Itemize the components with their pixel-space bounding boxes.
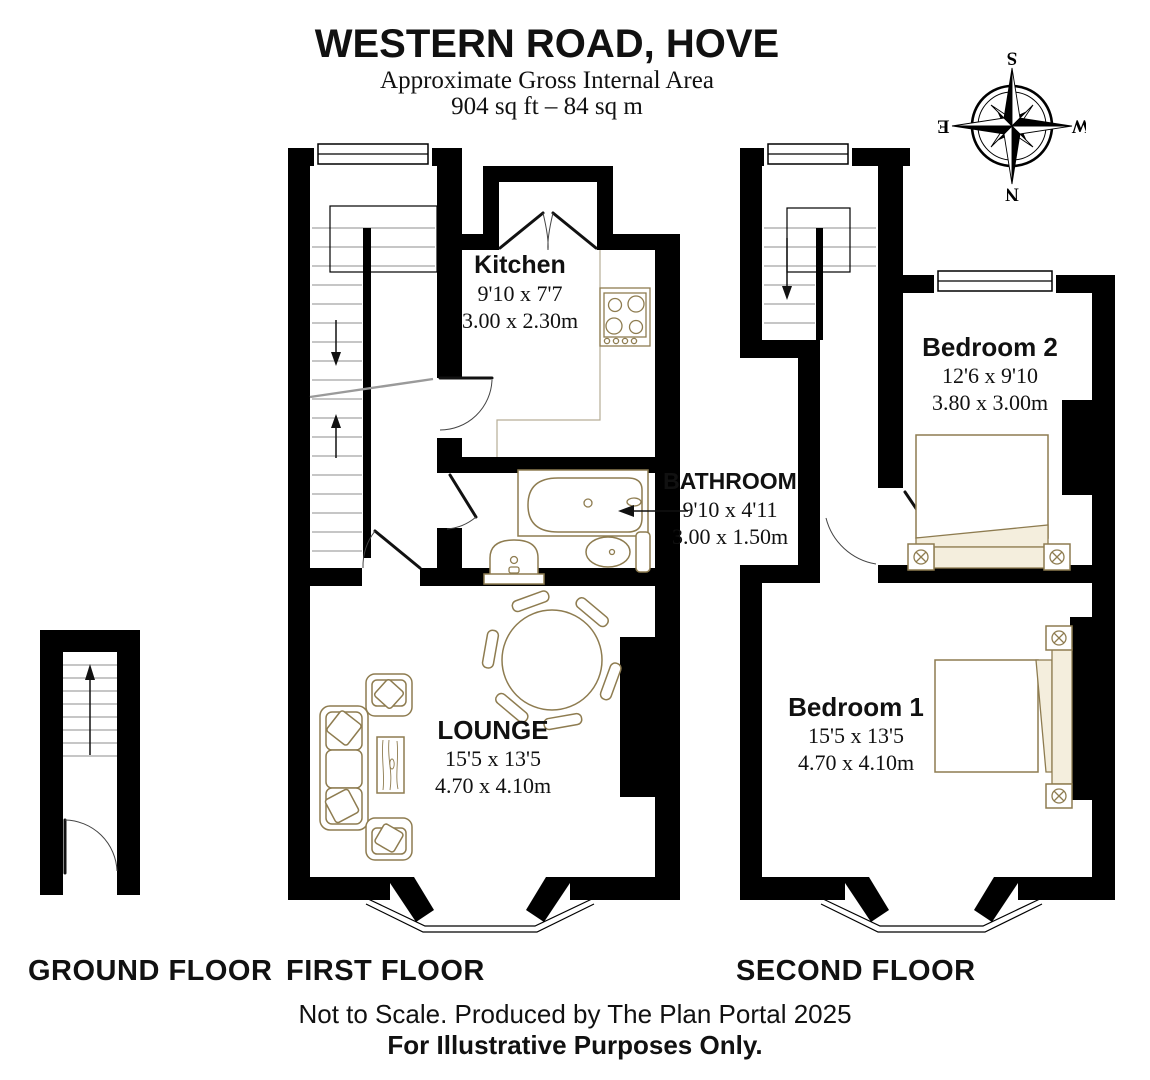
ground-floor-label: GROUND FLOOR — [28, 955, 272, 988]
room-dim-imperial: 15'5 x 13'5 — [756, 722, 956, 749]
stairs-icon — [63, 664, 117, 756]
room-dim-imperial: 9'10 x 4'11 — [653, 496, 807, 523]
ground-floor-plan — [35, 620, 155, 905]
floorplan-page: WESTERN ROAD, HOVE Approximate Gross Int… — [0, 0, 1150, 1080]
subtitle: Approximate Gross Internal Area — [0, 68, 1094, 94]
toilet-icon — [586, 532, 650, 572]
room-name: Kitchen — [420, 250, 620, 280]
stairs-icon — [764, 208, 876, 340]
bedroom2-label: Bedroom 2 12'6 x 9'10 3.80 x 3.00m — [890, 332, 1090, 416]
footer-disclaimer: For Illustrative Purposes Only. — [0, 1030, 1150, 1061]
bay-window-icon — [821, 877, 1042, 932]
page-title: WESTERN ROAD, HOVE — [0, 22, 1094, 66]
area-text: 904 sq ft – 84 sq m — [0, 94, 1094, 120]
room-name: BATHROOM — [653, 466, 807, 496]
room-dim-imperial: 15'5 x 13'5 — [393, 745, 593, 772]
stair-window-icon — [314, 140, 432, 168]
first-floor-label: FIRST FLOOR — [286, 955, 485, 988]
kitchen-label: Kitchen 9'10 x 7'7 3.00 x 2.30m — [420, 250, 620, 334]
bedroom1-label: Bedroom 1 15'5 x 13'5 4.70 x 4.10m — [756, 692, 956, 776]
room-dim-metric: 4.70 x 4.10m — [393, 772, 593, 799]
entrance-door-swing-icon — [65, 820, 117, 873]
double-bed-icon — [908, 435, 1070, 570]
basin-icon — [484, 540, 544, 584]
armchair-icon — [366, 674, 412, 716]
room-name: Bedroom 2 — [890, 332, 1090, 362]
room-dim-imperial: 12'6 x 9'10 — [890, 362, 1090, 389]
footer-note: Not to Scale. Produced by The Plan Porta… — [0, 999, 1150, 1030]
second-floor-label: SECOND FLOOR — [736, 955, 976, 988]
bathroom-label: BATHROOM 9'10 x 4'11 3.00 x 1.50m — [653, 466, 807, 550]
room-name: Bedroom 1 — [756, 692, 956, 722]
room-name: LOUNGE — [393, 715, 593, 745]
bathtub-icon — [518, 470, 648, 536]
armchair-icon — [366, 818, 412, 860]
sofa-icon — [320, 706, 368, 830]
bedroom2-window-icon — [934, 267, 1056, 295]
room-dim-metric: 4.70 x 4.10m — [756, 749, 956, 776]
compass-s: S — [1007, 48, 1018, 69]
room-dim-metric: 3.00 x 2.30m — [420, 307, 620, 334]
room-dim-metric: 3.80 x 3.00m — [890, 389, 1090, 416]
room-dim-imperial: 9'10 x 7'7 — [420, 280, 620, 307]
lounge-label: LOUNGE 15'5 x 13'5 4.70 x 4.10m — [393, 715, 593, 799]
dining-table-icon — [482, 590, 623, 731]
stairs-icon — [310, 206, 437, 558]
stair-window-icon — [764, 140, 852, 168]
room-dim-metric: 3.00 x 1.50m — [653, 523, 807, 550]
bay-window-icon — [366, 877, 594, 932]
